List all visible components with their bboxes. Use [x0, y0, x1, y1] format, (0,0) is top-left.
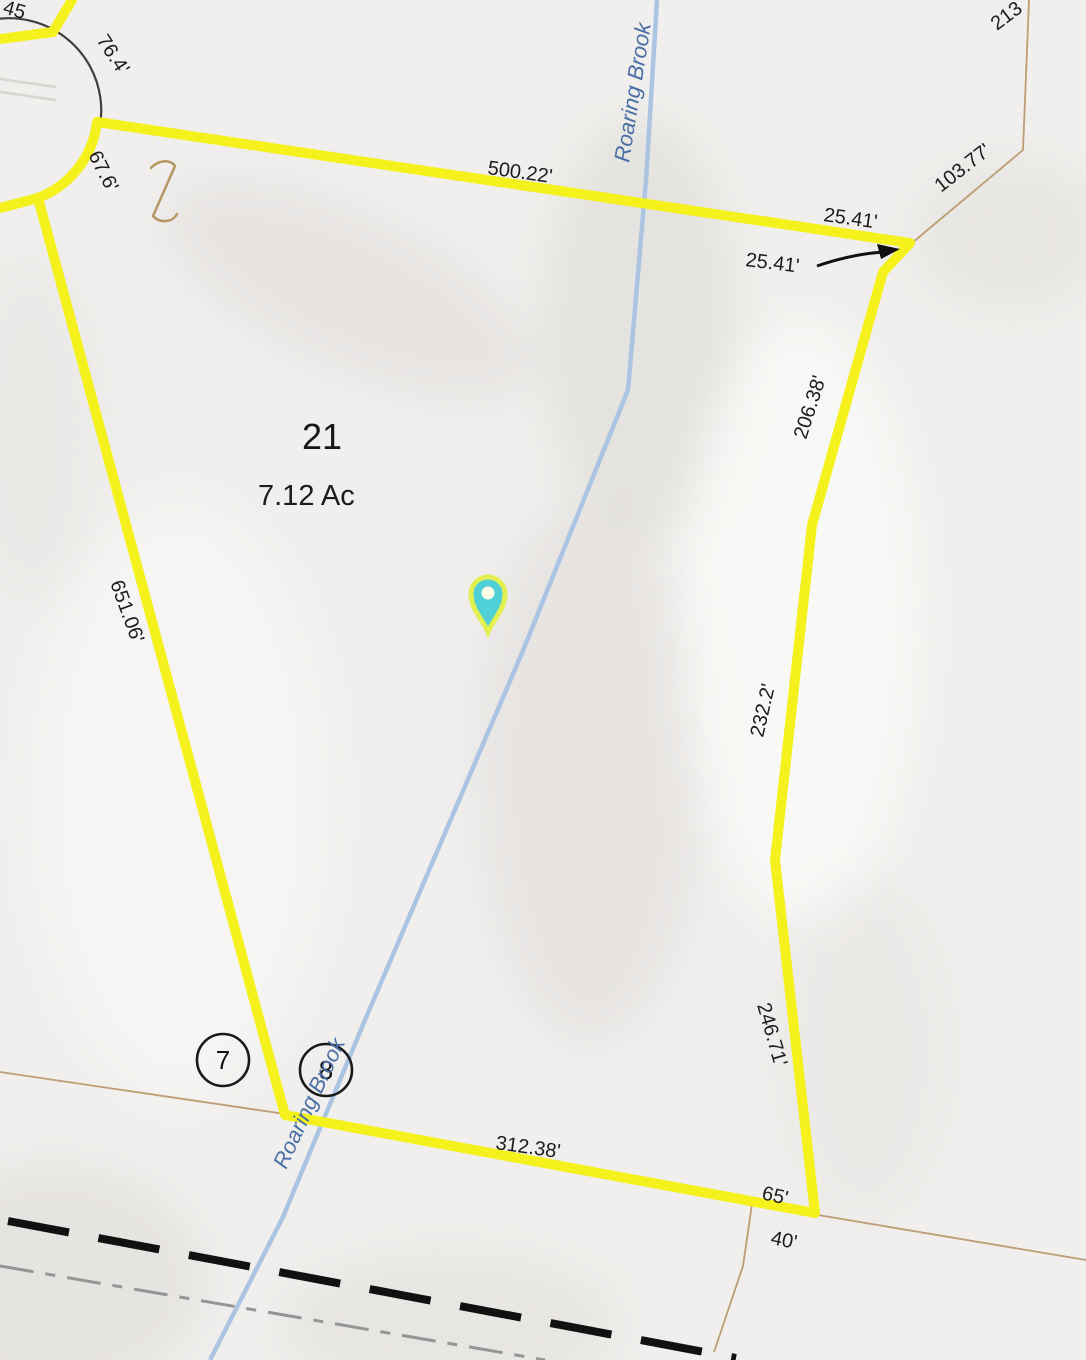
- parcel-area-label: 7.12 Ac: [258, 480, 355, 512]
- parcel-number-label: 21: [302, 416, 342, 457]
- location-pin-hole: [482, 587, 495, 600]
- map-canvas[interactable]: 45 76.4' 67.6' 500.22' 25.41' 25.41' 103…: [0, 0, 1086, 1360]
- road-marker-7-label: 7: [216, 1045, 230, 1075]
- parcel-map-svg[interactable]: 45 76.4' 67.6' 500.22' 25.41' 25.41' 103…: [0, 0, 1086, 1360]
